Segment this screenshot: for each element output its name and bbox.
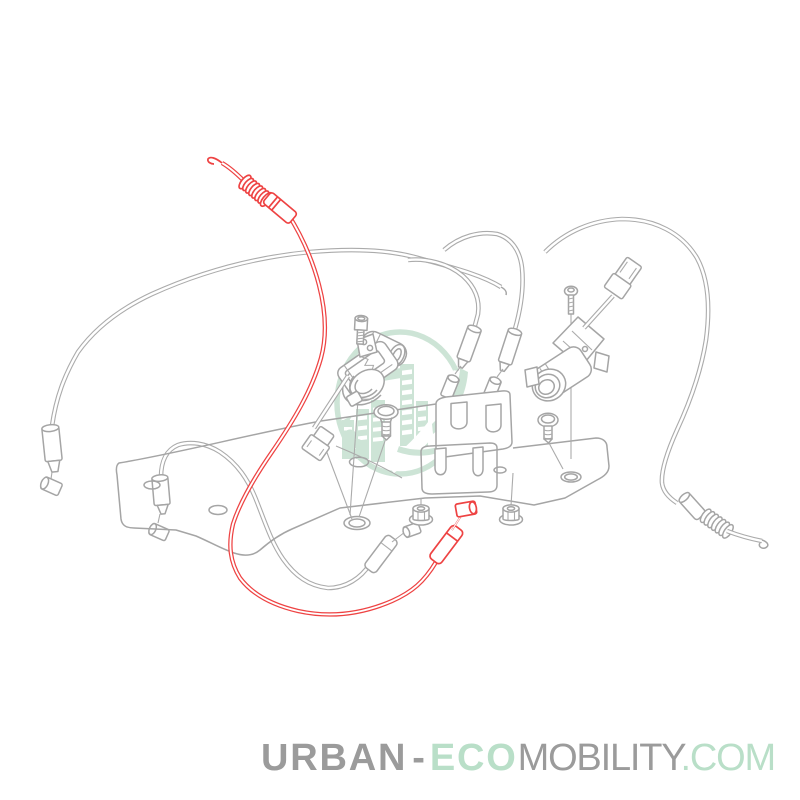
svg-text:URBAN-ECOMOBILITY.COM: URBAN-ECOMOBILITY.COM (261, 737, 775, 779)
